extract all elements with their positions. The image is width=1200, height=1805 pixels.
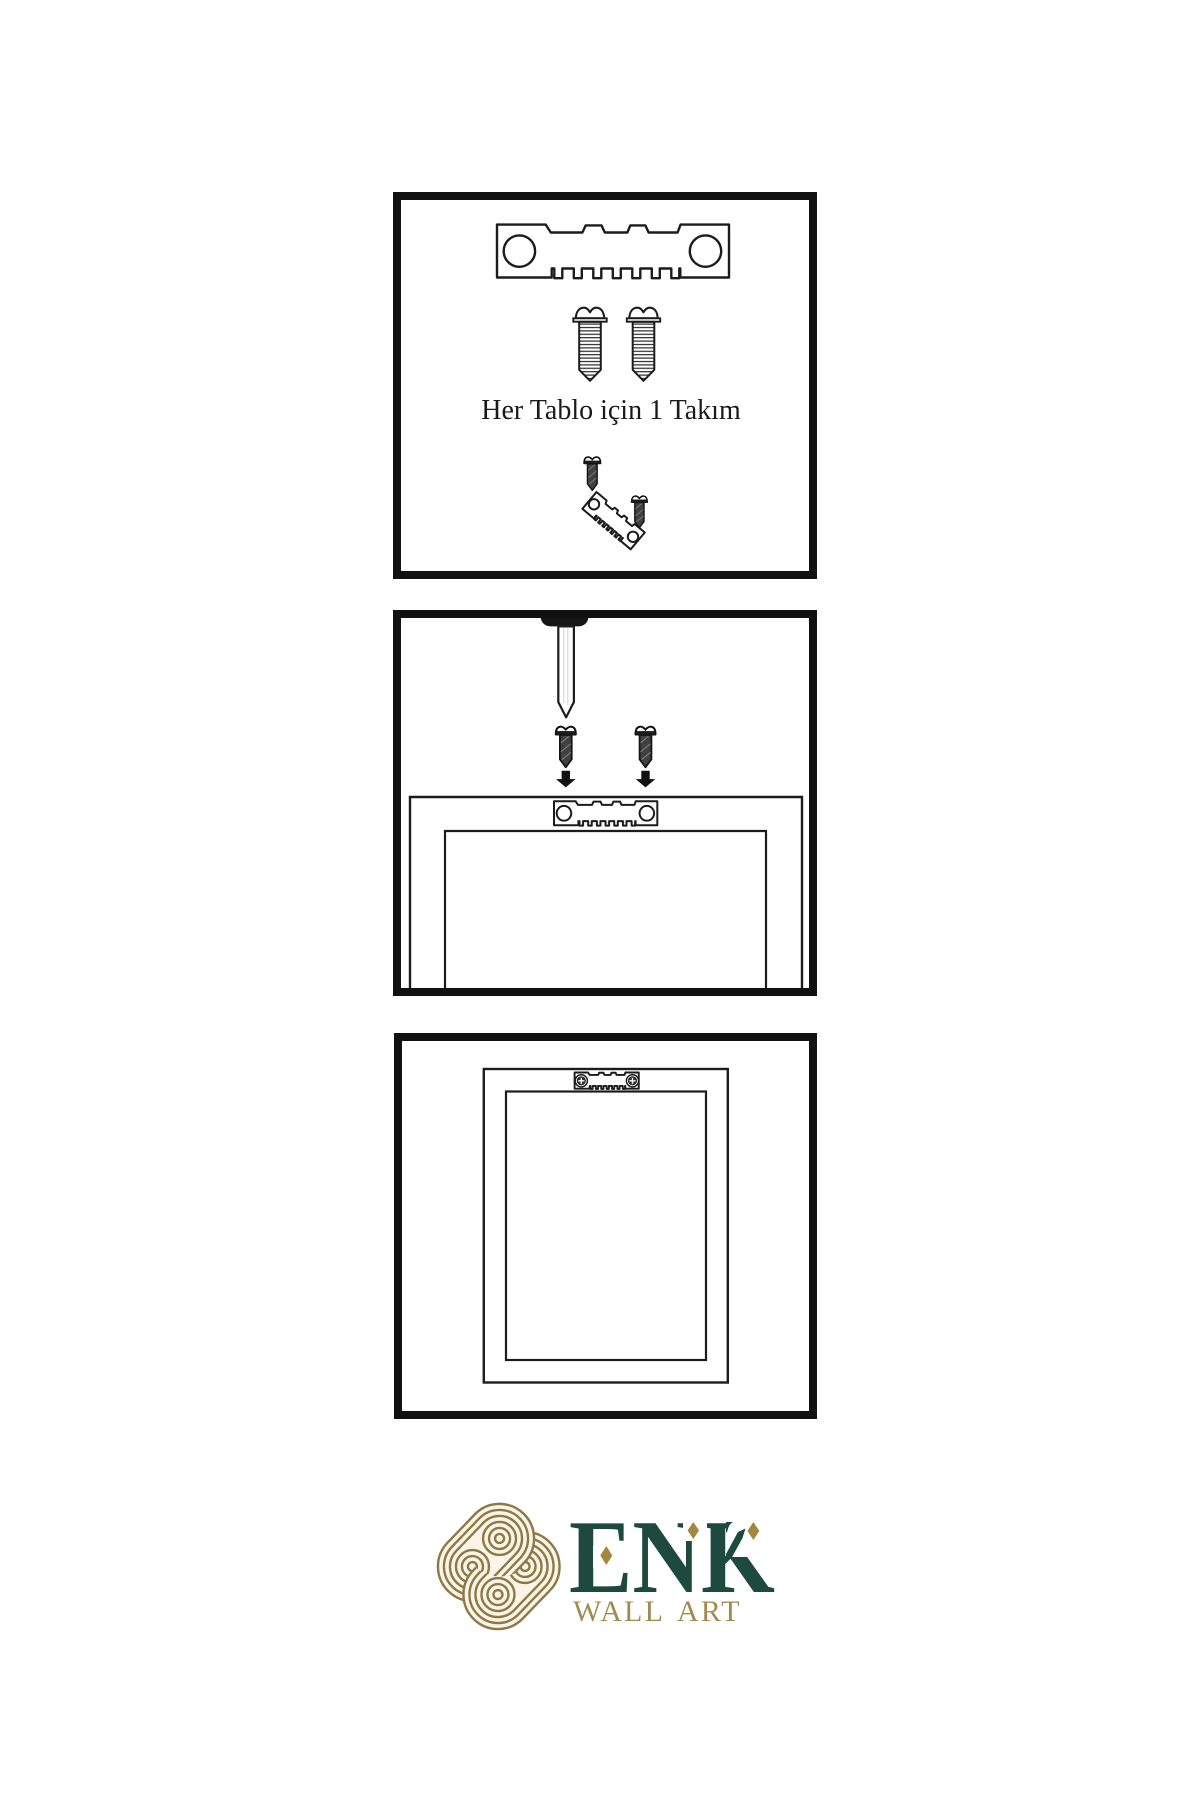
svg-text:Her Tablo için 1 Takım: Her Tablo için 1 Takım (481, 395, 741, 426)
svg-text:WALL ART: WALL ART (573, 1595, 742, 1628)
